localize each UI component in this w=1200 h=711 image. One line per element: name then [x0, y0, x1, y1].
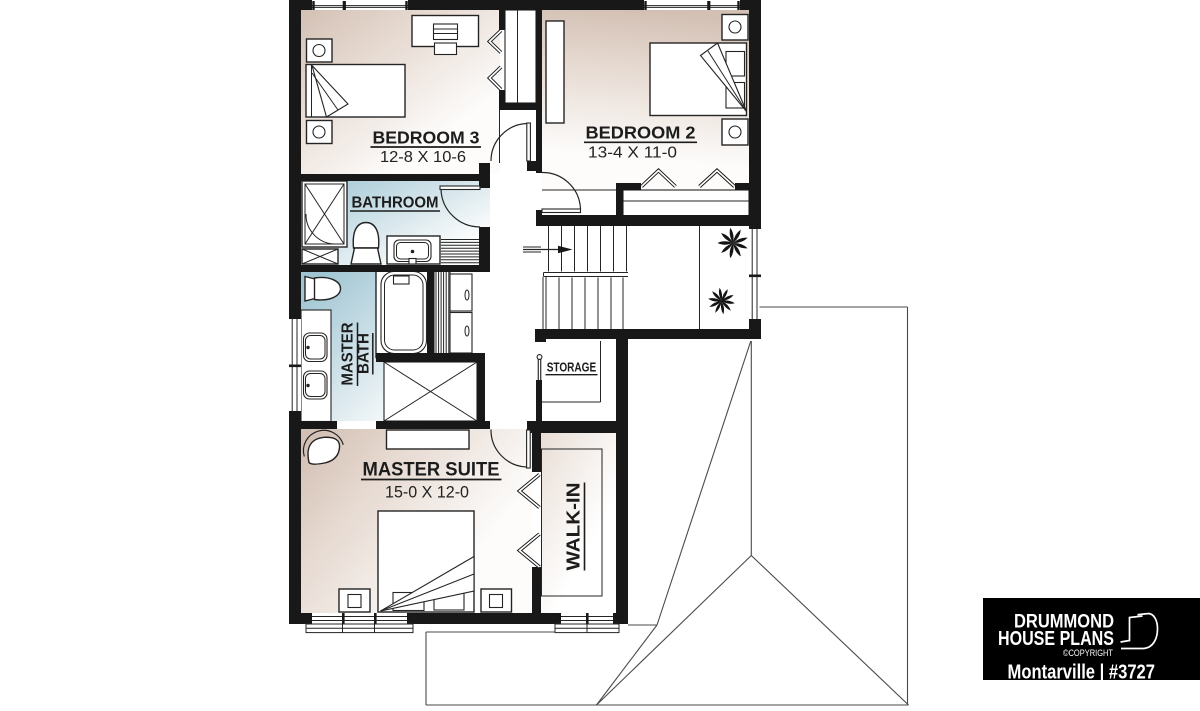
svg-text:BATH: BATH — [356, 333, 373, 374]
svg-text:MASTER: MASTER — [340, 323, 357, 386]
svg-text:MASTER SUITE: MASTER SUITE — [363, 460, 500, 481]
svg-text:BATHROOM: BATHROOM — [352, 195, 439, 212]
svg-text:HOUSE PLANS: HOUSE PLANS — [998, 628, 1114, 650]
svg-text:BEDROOM 3: BEDROOM 3 — [373, 128, 480, 148]
svg-text:WALK-IN: WALK-IN — [564, 483, 584, 571]
svg-text:15-0 X 12-0: 15-0 X 12-0 — [385, 484, 469, 502]
svg-text:STORAGE: STORAGE — [547, 361, 597, 375]
svg-text:12-8 X 10-6: 12-8 X 10-6 — [380, 149, 466, 166]
svg-text:13-4 X 11-0: 13-4 X 11-0 — [588, 145, 677, 162]
svg-text:BEDROOM 2: BEDROOM 2 — [586, 123, 696, 143]
svg-text:Montarville | #3727: Montarville | #3727 — [1008, 662, 1156, 684]
svg-text:©COPYRIGHT: ©COPYRIGHT — [1063, 648, 1113, 658]
